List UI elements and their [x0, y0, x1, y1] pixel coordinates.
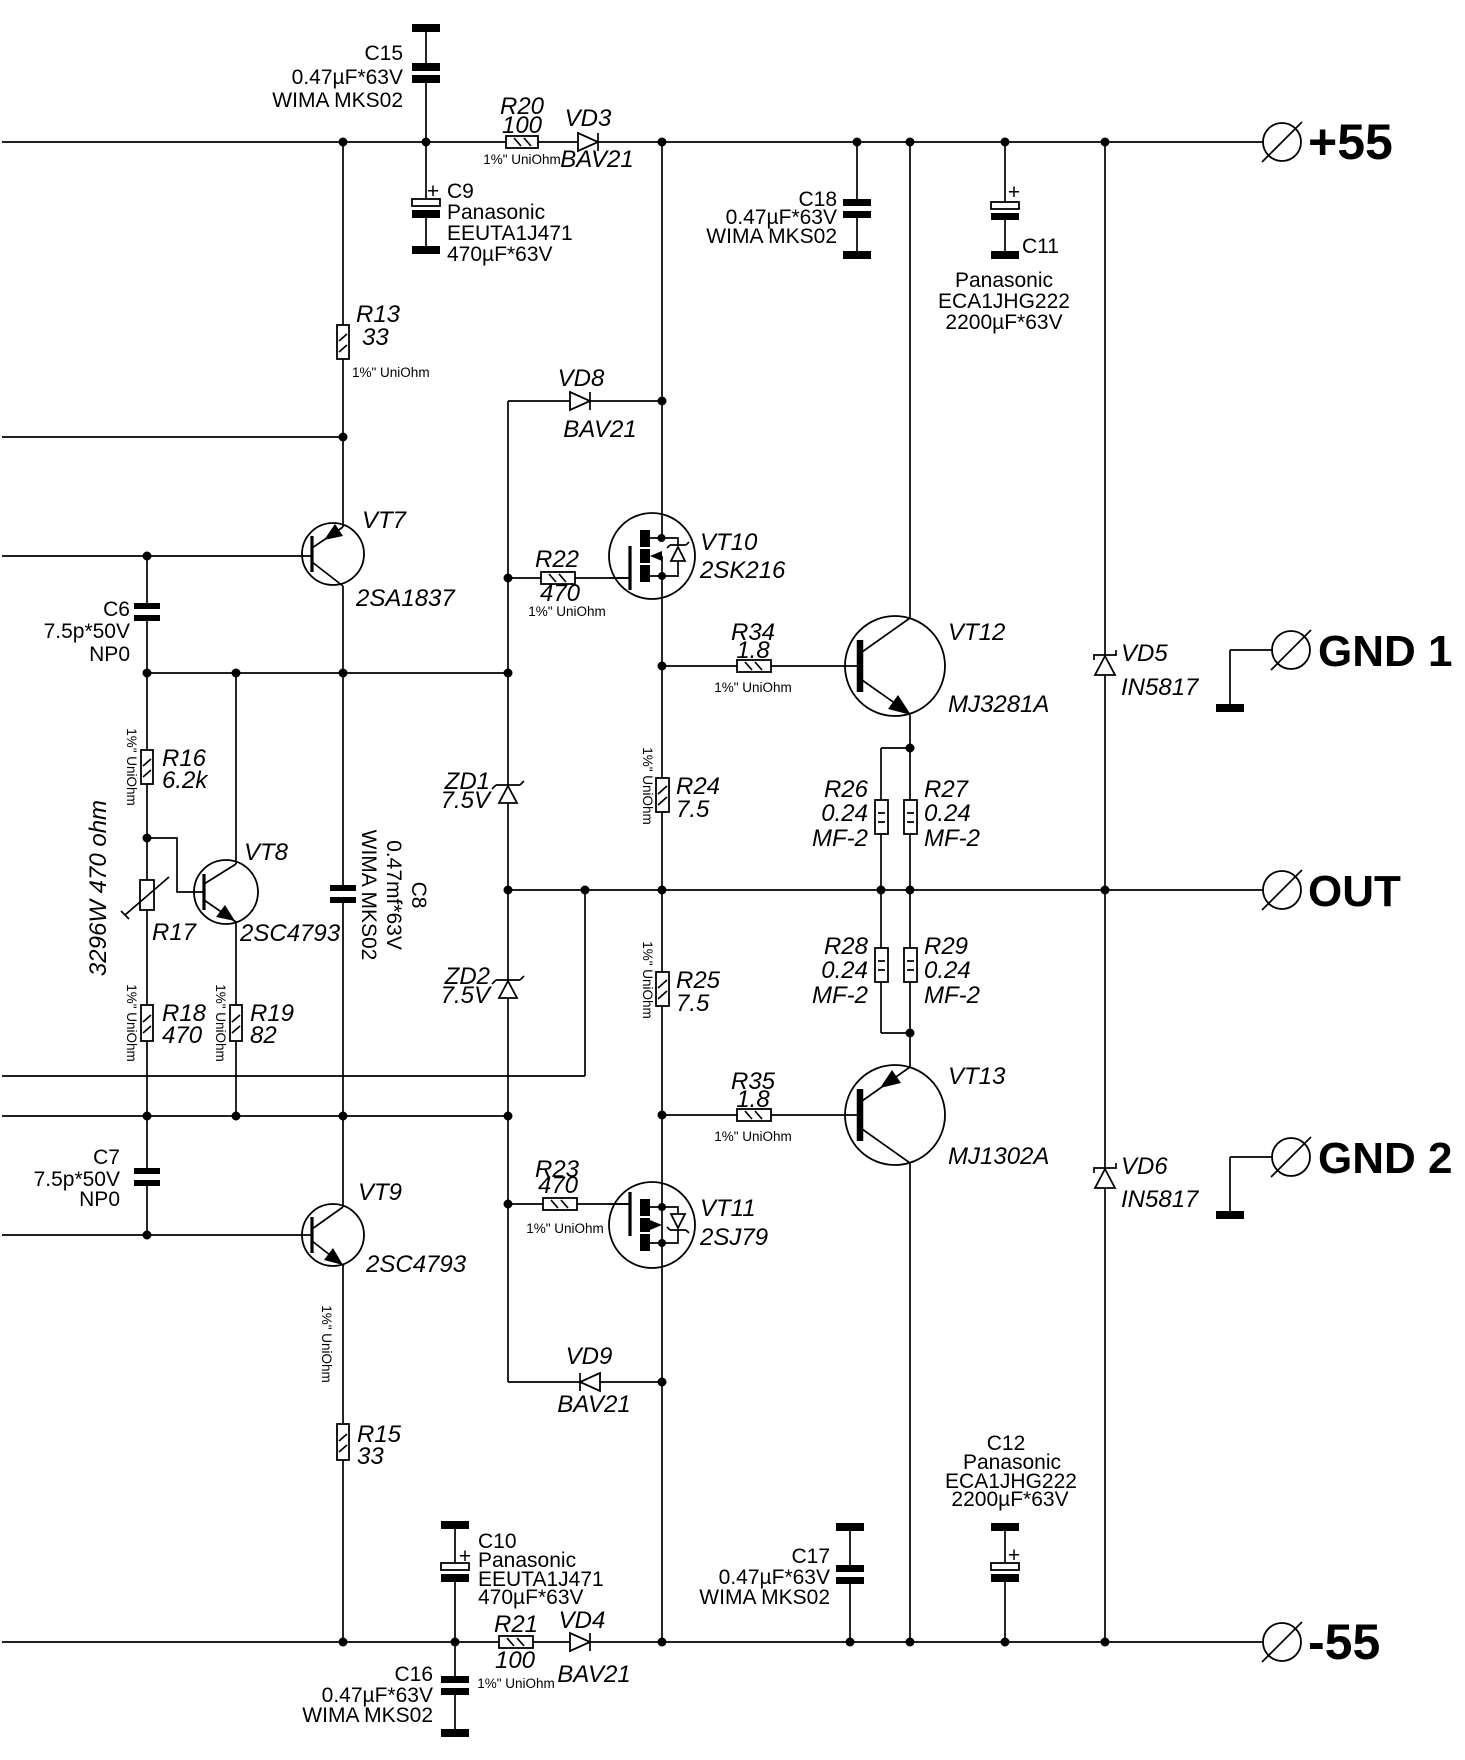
label-r28-value: 0.24: [821, 957, 868, 984]
label-r21-tol: 1%" UniOhm: [477, 1676, 555, 1691]
label-r21-value: 100: [495, 1647, 536, 1674]
component-labels: C15 0.47µF*63V WIMA MKS02 R20 100 1%" Un…: [34, 42, 1200, 1727]
label-r35-tol: 1%" UniOhm: [714, 1129, 792, 1144]
label-r13-value: 33: [362, 324, 389, 351]
label-vd4-ref: VD4: [559, 1607, 606, 1634]
label-c18-part: WIMA MKS02: [706, 225, 837, 248]
transistor-VT9: [302, 1204, 364, 1266]
zener-ZD1: [492, 781, 524, 803]
label-r22-value: 470: [540, 580, 581, 607]
label-r20-value: 100: [502, 112, 543, 139]
label-r28-ref: R28: [824, 933, 869, 960]
label-r23-tol: 1%" UniOhm: [526, 1221, 604, 1236]
label-vt11-ref: VT11: [700, 1195, 756, 1222]
label-c17-ref: C17: [791, 1545, 830, 1568]
label-r26-ref: R26: [824, 776, 869, 803]
terminal-gnd2-label: GND 2: [1318, 1134, 1452, 1183]
resistor-R24: [656, 778, 669, 812]
label-c11-value: 2200µF*63V: [945, 311, 1062, 334]
label-zd1-value: 7.5V: [441, 787, 492, 814]
ground-bars: [412, 24, 1244, 1737]
label-c12-plus: +: [1008, 1544, 1020, 1567]
resistor-R28: [875, 948, 888, 982]
label-vd3-ref: VD3: [565, 105, 612, 132]
resistor-R23: [543, 1198, 577, 1210]
resistor-R13: [337, 325, 349, 359]
label-r19-value: 82: [250, 1022, 277, 1049]
transistor-VT13: [845, 1065, 945, 1165]
label-r28-part: MF-2: [812, 982, 868, 1009]
capacitor-C8: [330, 885, 356, 903]
label-c8-ref: C8: [407, 882, 430, 909]
resistor-R15: [337, 1424, 349, 1460]
label-c8-part: WIMA MKS02: [357, 830, 380, 961]
label-r15-value: 33: [357, 1443, 384, 1470]
label-vt7-part: 2SA1837: [355, 585, 456, 612]
label-r18-value: 470: [162, 1022, 203, 1049]
resistor-R26: [875, 800, 888, 834]
terminal-plus55: +55: [1262, 114, 1393, 170]
label-r24-tol: 1%" UniOhm: [640, 747, 655, 825]
label-vt13-ref: VT13: [948, 1063, 1006, 1090]
zener-ZD2: [492, 976, 524, 998]
resistor-R25: [656, 972, 669, 1006]
label-c6-value: 7.5p*50V: [44, 620, 130, 643]
label-r19-tol: 1%" UniOhm: [213, 984, 228, 1062]
label-c15-value: 0.47µF*63V: [292, 66, 403, 89]
label-r24-value: 7.5: [676, 796, 710, 823]
label-r25-value: 7.5: [676, 990, 710, 1017]
label-c17-part: WIMA MKS02: [699, 1586, 830, 1609]
label-r17-part: 3296W 470 ohm: [85, 800, 112, 976]
label-r18-tol: 1%" UniOhm: [124, 984, 139, 1062]
label-vt11-part: 2SJ79: [699, 1224, 768, 1251]
label-r17-ref: R17: [152, 919, 198, 946]
capacitor-C7: [134, 1168, 160, 1186]
diode-VD8: [570, 392, 590, 410]
label-vd9-part: BAV21: [557, 1391, 630, 1418]
label-vd6-ref: VD6: [1121, 1153, 1168, 1180]
label-vt9-ref: VT9: [358, 1179, 402, 1206]
terminal-plus55-label: +55: [1308, 114, 1393, 170]
label-vt12-part: MJ3281A: [948, 691, 1049, 718]
label-r27-part: MF-2: [924, 825, 980, 852]
capacitor-C18: [843, 199, 871, 218]
label-r15-tol: 1%" UniOhm: [319, 1305, 334, 1383]
label-c10-value: 470µF*63V: [478, 1586, 584, 1609]
label-zd2-value: 7.5V: [441, 982, 492, 1009]
resistor-R27: [904, 800, 917, 834]
label-r20-tol: 1%" UniOhm: [483, 152, 561, 167]
label-r29-part: MF-2: [924, 982, 980, 1009]
label-r29-value: 0.24: [924, 957, 971, 984]
label-vd8-ref: VD8: [558, 365, 605, 392]
label-c9-plus: +: [427, 180, 439, 203]
diode-VD4: [570, 1633, 590, 1651]
label-r29-ref: R29: [924, 933, 968, 960]
label-c12-value: 2200µF*63V: [951, 1488, 1068, 1511]
label-c9-ref: C9: [447, 180, 474, 203]
label-r16-value: 6.2k: [162, 767, 209, 794]
schematic-page: +55 GND 1 OUT GND 2 -55 C15 0.47µF*63V W…: [0, 0, 1465, 1760]
label-vt8-part: 2SC4793: [239, 920, 341, 947]
label-c9-brand: Panasonic: [447, 201, 545, 224]
label-c9-value: 470µF*63V: [447, 243, 553, 266]
label-c6-part: NP0: [89, 643, 130, 666]
junction-dots: [143, 138, 1110, 1647]
label-vd9-ref: VD9: [566, 1343, 613, 1370]
label-r27-value: 0.24: [924, 800, 971, 827]
label-vd6-part: IN5817: [1121, 1186, 1200, 1213]
label-vt7-ref: VT7: [362, 507, 408, 534]
label-vt9-part: 2SC4793: [365, 1251, 467, 1278]
label-c7-ref: C7: [93, 1146, 120, 1169]
label-r22-tol: 1%" UniOhm: [528, 604, 606, 619]
label-r25-tol: 1%" UniOhm: [640, 941, 655, 1019]
resistor-R19: [230, 1005, 242, 1041]
mosfet-VT11: [609, 1182, 695, 1268]
label-r23-value: 470: [538, 1172, 579, 1199]
label-r22-ref: R22: [535, 546, 579, 573]
label-vt13-part: MJ1302A: [948, 1143, 1049, 1170]
label-c11-part: ECA1JHG222: [938, 290, 1070, 313]
resistor-R18: [141, 1005, 153, 1041]
label-c7-part: NP0: [79, 1188, 120, 1211]
label-r27-ref: R27: [924, 776, 970, 803]
resistor-R29: [904, 948, 917, 982]
label-c15-part: WIMA MKS02: [272, 89, 403, 112]
diode-VD9: [580, 1373, 600, 1391]
label-vd4-part: BAV21: [557, 1661, 630, 1688]
label-vt8-ref: VT8: [244, 839, 289, 866]
capacitor-C6: [134, 603, 160, 621]
label-r21-ref: R21: [494, 1611, 538, 1638]
label-r26-part: MF-2: [812, 825, 868, 852]
terminal-minus55-label: -55: [1308, 1614, 1380, 1670]
label-vd5-part: IN5817: [1121, 674, 1200, 701]
transistor-VT8: [194, 860, 258, 924]
schematic-canvas: +55 GND 1 OUT GND 2 -55 C15 0.47µF*63V W…: [0, 0, 1465, 1760]
capacitor-C16: [441, 1676, 469, 1695]
transistor-VT12: [845, 616, 945, 716]
label-r35-value: 1.8: [736, 1086, 770, 1113]
label-r34-tol: 1%" UniOhm: [714, 680, 792, 695]
terminal-out-label: OUT: [1308, 867, 1401, 916]
label-c10-plus: +: [459, 1545, 471, 1568]
terminal-gnd1: GND 1: [1271, 627, 1452, 676]
mosfet-VT10: [609, 513, 695, 599]
label-vt10-part: 2SK216: [699, 557, 786, 584]
label-r26-value: 0.24: [821, 800, 868, 827]
terminal-out: OUT: [1262, 867, 1401, 916]
label-vd3-part: BAV21: [560, 146, 633, 173]
label-r34-value: 1.8: [736, 637, 770, 664]
label-c6-ref: C6: [103, 598, 130, 621]
label-c11-brand: Panasonic: [955, 269, 1053, 292]
wire-segments: [2, 32, 1272, 1729]
label-c8-value: 0.47mf*63V: [382, 840, 405, 950]
label-c11-plus: +: [1008, 181, 1020, 204]
terminal-gnd2: GND 2: [1271, 1134, 1452, 1183]
label-vt12-ref: VT12: [948, 619, 1005, 646]
terminal-gnd1-label: GND 1: [1318, 627, 1452, 676]
label-c11-ref: C11: [1022, 235, 1059, 258]
terminal-minus55: -55: [1262, 1614, 1380, 1670]
label-c15-ref: C15: [364, 42, 403, 65]
resistor-R16: [141, 750, 153, 784]
label-r13-tol: 1%" UniOhm: [352, 365, 430, 380]
label-vt10-ref: VT10: [700, 529, 758, 556]
capacitor-C17: [836, 1565, 864, 1584]
label-c9-part: EEUTA1J471: [447, 222, 573, 245]
capacitor-C11: [991, 202, 1019, 220]
label-vd5-ref: VD5: [1121, 640, 1168, 667]
label-r16-tol: 1%" UniOhm: [124, 728, 139, 806]
capacitor-C15: [412, 63, 440, 83]
trimmer-R17: [121, 877, 169, 919]
label-vd8-part: BAV21: [563, 416, 636, 443]
label-c16-part: WIMA MKS02: [302, 1704, 433, 1727]
transistor-VT7: [302, 523, 364, 586]
label-c16-ref: C16: [394, 1663, 433, 1686]
